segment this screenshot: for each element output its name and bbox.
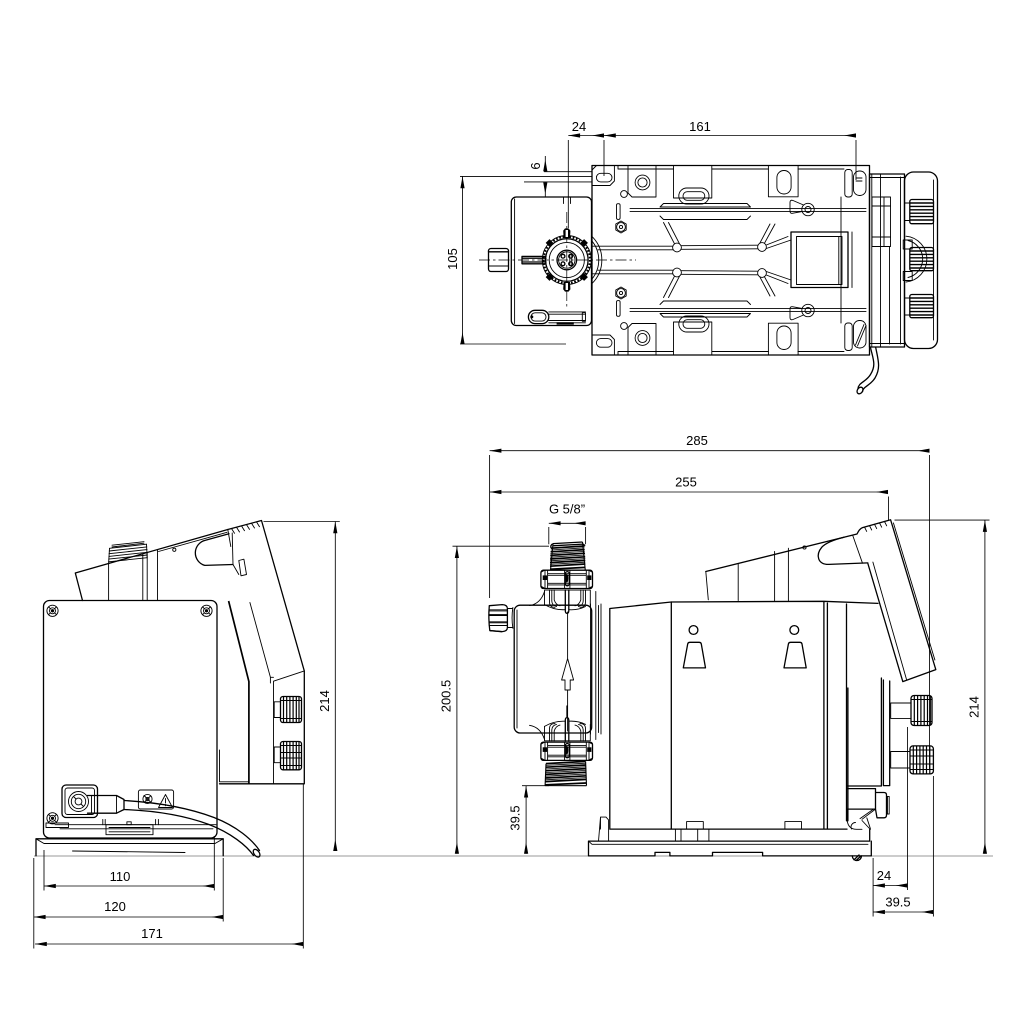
svg-text:255: 255 bbox=[675, 475, 697, 490]
svg-text:120: 120 bbox=[104, 899, 126, 914]
svg-text:214: 214 bbox=[317, 690, 332, 712]
svg-text:200.5: 200.5 bbox=[439, 680, 454, 713]
svg-text:6: 6 bbox=[528, 162, 543, 169]
svg-text:39.5: 39.5 bbox=[508, 805, 523, 830]
svg-text:24: 24 bbox=[572, 119, 586, 134]
svg-text:39.5: 39.5 bbox=[885, 895, 910, 910]
svg-text:24: 24 bbox=[877, 868, 891, 883]
svg-text:171: 171 bbox=[141, 926, 163, 941]
svg-text:285: 285 bbox=[686, 433, 708, 448]
svg-text:161: 161 bbox=[689, 119, 711, 134]
svg-text:105: 105 bbox=[445, 248, 460, 270]
svg-text:G 5/8”: G 5/8” bbox=[549, 502, 585, 517]
svg-text:110: 110 bbox=[110, 869, 131, 884]
svg-text:214: 214 bbox=[967, 696, 982, 718]
